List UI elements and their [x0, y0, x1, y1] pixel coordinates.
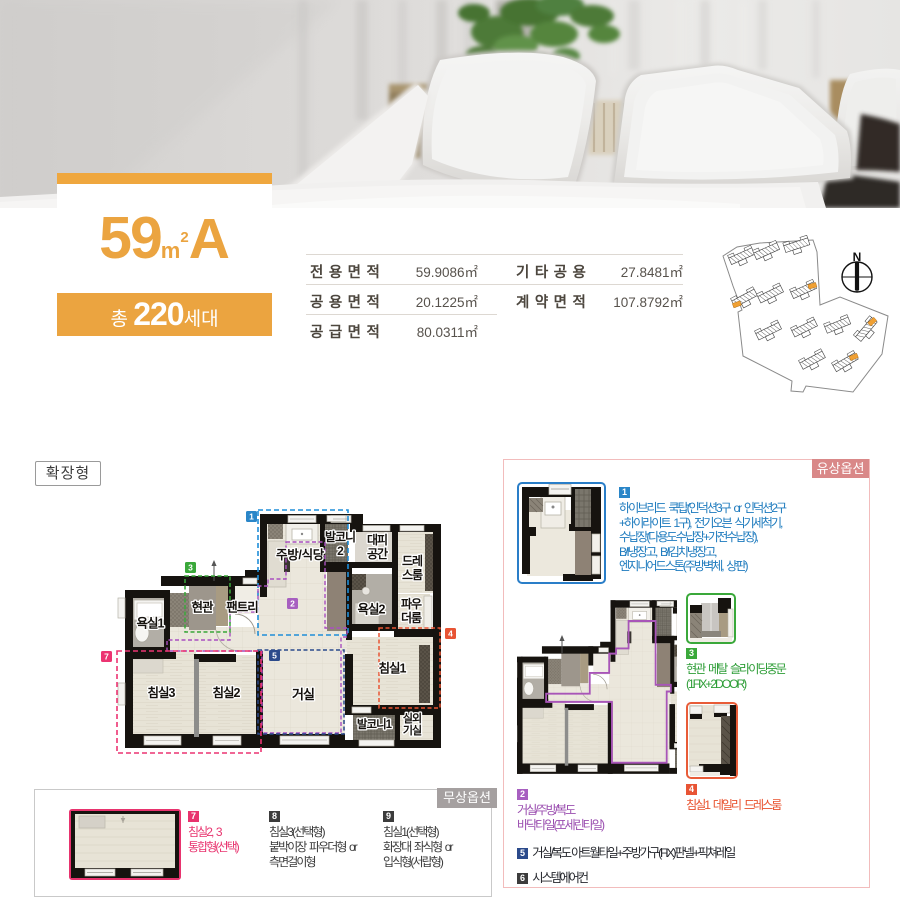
svg-text:3: 3	[188, 563, 193, 573]
svg-text:대피: 대피	[367, 532, 387, 547]
svg-text:현관: 현관	[191, 600, 214, 615]
svg-text:거실: 거실	[292, 687, 314, 702]
svg-text:7: 7	[104, 652, 109, 662]
svg-text:발코니1: 발코니1	[357, 717, 393, 731]
svg-text:드레: 드레	[402, 553, 423, 568]
svg-text:발코니: 발코니	[325, 529, 355, 544]
svg-text:더룸: 더룸	[401, 610, 422, 625]
svg-text:N: N	[853, 250, 862, 264]
svg-text:스룸: 스룸	[402, 567, 423, 582]
svg-text:욕실2: 욕실2	[358, 602, 386, 617]
svg-text:실외: 실외	[403, 711, 421, 725]
svg-text:침실3: 침실3	[148, 685, 176, 700]
svg-text:기실: 기실	[403, 723, 422, 737]
svg-text:2: 2	[290, 599, 295, 609]
svg-text:파우: 파우	[401, 596, 422, 611]
svg-text:5: 5	[272, 651, 277, 661]
svg-text:주방/식당: 주방/식당	[276, 547, 325, 562]
svg-text:침실2: 침실2	[213, 685, 241, 700]
svg-text:팬트리: 팬트리	[226, 600, 258, 615]
svg-text:1: 1	[249, 512, 254, 522]
svg-text:공간: 공간	[367, 546, 388, 561]
svg-text:욕실1: 욕실1	[137, 616, 165, 631]
svg-text:4: 4	[448, 629, 453, 639]
svg-text:침실1: 침실1	[379, 661, 407, 676]
